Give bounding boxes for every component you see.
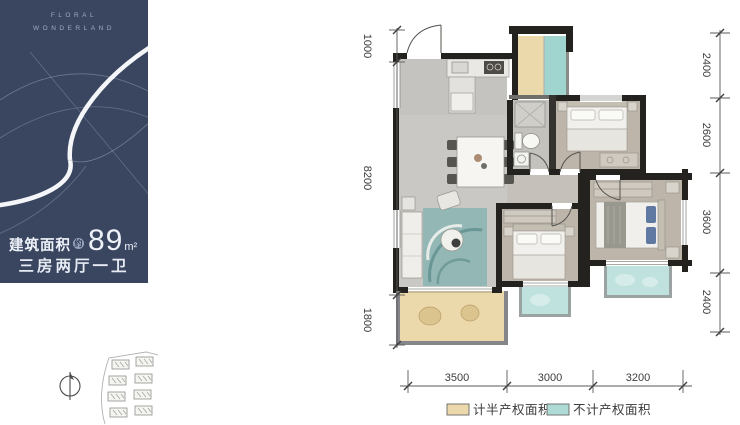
half-area-balcony [400, 291, 504, 341]
dim-right-2: 3600 [700, 210, 712, 234]
layout-text: 三房两厅一卫 [0, 254, 148, 276]
site-buildings [108, 357, 153, 417]
floor-plan: 1000 8200 1800 2400 2600 3600 2400 3500 … [350, 0, 740, 425]
dim-left-0: 1000 [361, 34, 373, 58]
half-area-top-platform [518, 36, 544, 95]
dim-bottom-2: 3200 [626, 372, 650, 384]
area-info: 建筑面积 约 89 m² [9, 224, 137, 258]
compass-north-icon [60, 372, 80, 400]
approx-badge: 约 [73, 238, 84, 249]
dim-bottom-1: 3000 [538, 372, 562, 384]
dim-left-2: 1800 [361, 308, 373, 332]
dining-set [447, 137, 514, 187]
brand-line-2: WONDERLAND [0, 22, 148, 35]
dim-bottom-0: 3500 [445, 372, 469, 384]
legend-label-no-area: 不计产权面积 [573, 402, 651, 417]
brand-logo: FLORAL WONDERLAND [0, 9, 148, 35]
dim-right-0: 2400 [700, 53, 712, 77]
legend: 计半产权面积 不计产权面积 [447, 402, 651, 417]
no-area-top-platform [544, 36, 566, 95]
area-value: 89 [88, 224, 123, 258]
legend-label-half-area: 计半产权面积 [473, 402, 551, 417]
legend-swatch-no-area [547, 404, 569, 415]
dim-left-1: 8200 [361, 166, 373, 190]
legend-swatch-half-area [447, 404, 469, 415]
brand-line-1: FLORAL [0, 9, 148, 22]
area-label: 建筑面积 [9, 234, 71, 255]
dim-right-1: 2600 [700, 123, 712, 147]
brand-panel: FLORAL WONDERLAND 建筑面积 约 89 m² 三房两厅一卫 [0, 0, 148, 283]
site-plan-sketch [8, 342, 158, 425]
dim-right-3: 2400 [700, 290, 712, 314]
area-unit: m² [124, 241, 137, 253]
